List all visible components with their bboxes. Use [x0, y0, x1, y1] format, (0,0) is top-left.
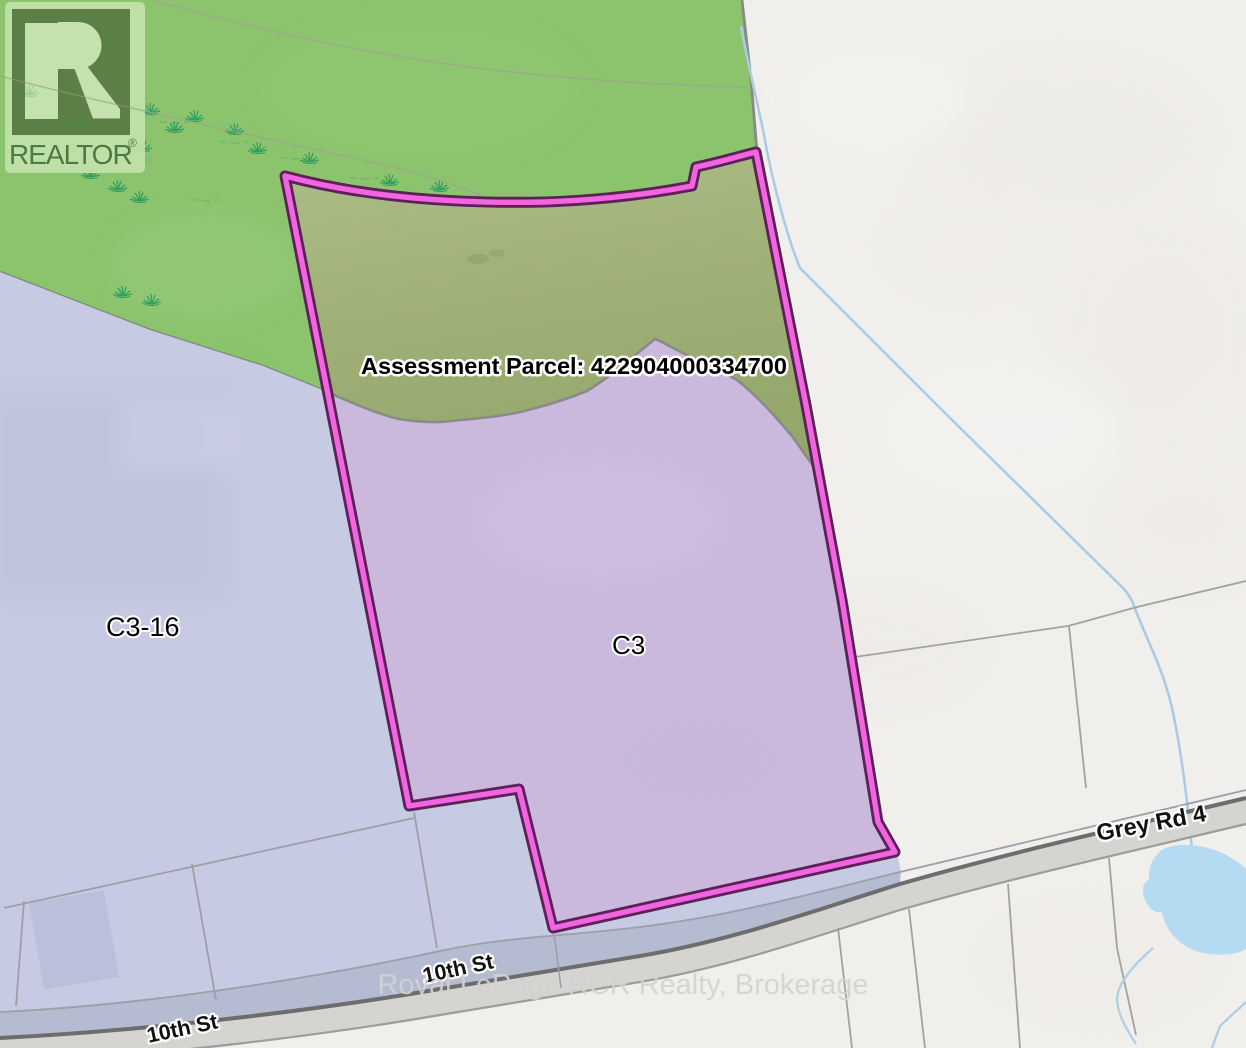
svg-text:REALTOR: REALTOR [9, 139, 132, 170]
svg-text:Assessment Parcel: 42290400033: Assessment Parcel: 422904000334700 [361, 353, 787, 379]
svg-text:Royal LePage RCR Realty, Broke: Royal LePage RCR Realty, Brokerage [377, 969, 868, 1001]
svg-text:C3: C3 [612, 630, 645, 660]
svg-text:®: ® [128, 136, 137, 150]
svg-text:C3-16: C3-16 [106, 612, 180, 642]
